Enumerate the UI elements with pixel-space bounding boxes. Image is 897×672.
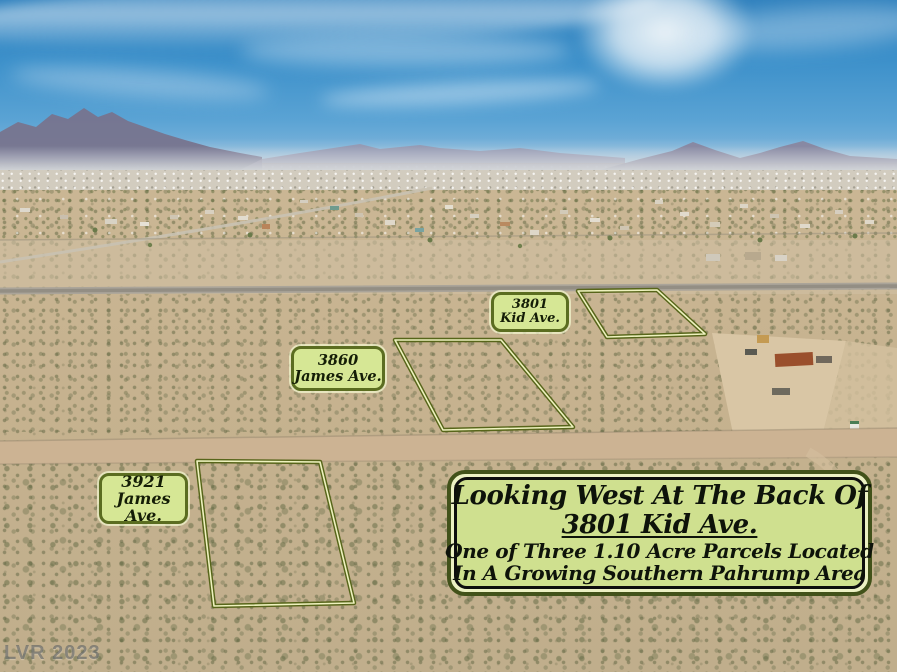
equipment <box>745 349 757 355</box>
parcel-street: James Ave. <box>102 490 185 525</box>
caption-line-3: One of Three 1.10 Acre Parcels Located <box>445 540 874 563</box>
parcel-outline-3921 <box>197 461 354 606</box>
parcel-outline-3860 <box>395 340 573 430</box>
loader <box>757 335 769 343</box>
parcel-street: James Ave. <box>294 369 381 385</box>
parcel-label-3921-james-ave: 3921 James Ave. <box>99 473 188 524</box>
caption-line-1: Looking West At The Back Of <box>452 482 868 511</box>
equipment <box>772 388 790 395</box>
town-buildings <box>20 200 874 261</box>
parcel-address: 3801 <box>512 298 548 312</box>
parcel-outline-3801 <box>578 290 705 337</box>
shipping-container <box>775 352 814 367</box>
diagonal-road <box>0 188 432 262</box>
fence-line <box>0 233 897 240</box>
caption-box-inner: Looking West At The Back Of 3801 Kid Ave… <box>454 477 865 589</box>
parcel-street: Kid Ave. <box>500 312 560 326</box>
mountain-base-haze <box>0 146 897 170</box>
mountain-ranges <box>0 108 897 170</box>
caption-line-2: 3801 Kid Ave. <box>562 511 758 540</box>
parcel-address: 3860 <box>318 353 358 369</box>
caption-line-4: In A Growing Southern Pahrump Area <box>453 562 866 585</box>
equipment <box>816 356 832 363</box>
parcel-label-3860-james-ave: 3860 James Ave. <box>291 346 385 391</box>
shed-roof <box>850 421 859 424</box>
paved-road <box>0 286 897 291</box>
caption-box: Looking West At The Back Of 3801 Kid Ave… <box>447 470 872 596</box>
parcel-address: 3921 <box>121 473 166 490</box>
dirt-road <box>0 428 897 464</box>
watermark: LVR 2023 <box>4 642 101 665</box>
parcel-label-3801-kid-ave: 3801 Kid Ave. <box>491 292 569 332</box>
aerial-listing-photo: 3801 Kid Ave. 3860 James Ave. 3921 James… <box>0 0 897 672</box>
